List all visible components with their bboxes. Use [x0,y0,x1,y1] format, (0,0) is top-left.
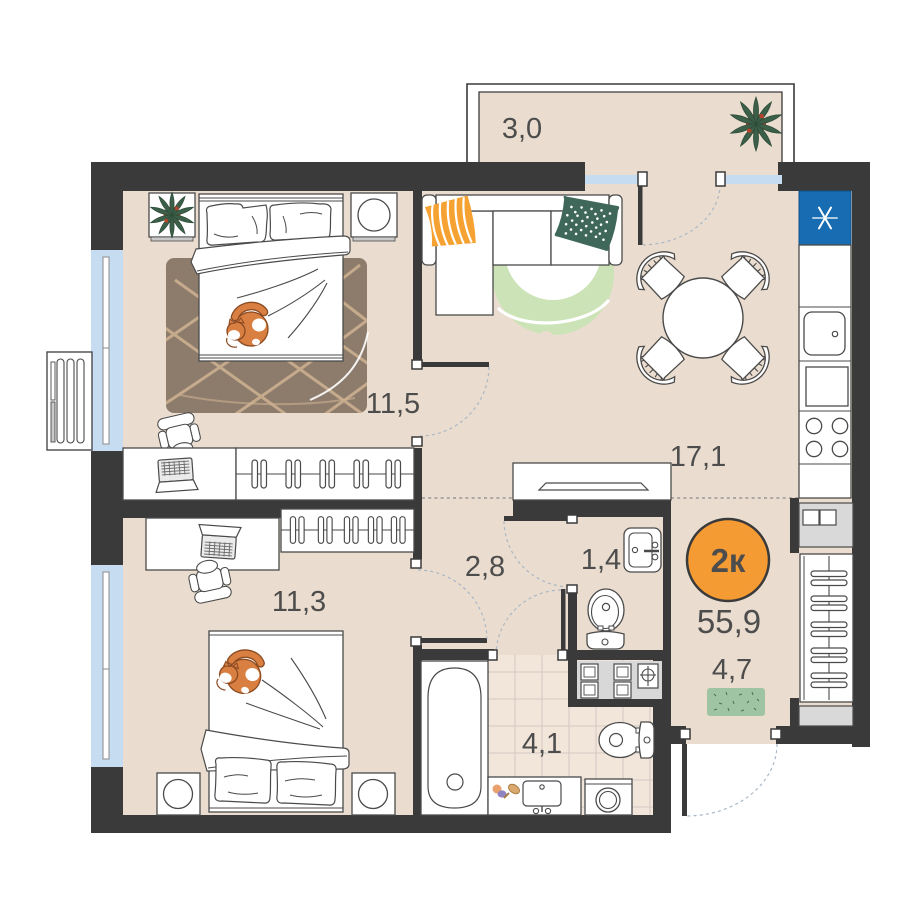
svg-text:4,7: 4,7 [712,654,752,686]
svg-text:11,5: 11,5 [366,388,420,420]
svg-text:3,0: 3,0 [502,113,542,145]
svg-text:1,4: 1,4 [581,544,621,576]
svg-text:2,8: 2,8 [465,551,505,583]
svg-text:11,3: 11,3 [272,586,326,618]
svg-text:55,9: 55,9 [697,603,761,640]
svg-text:4,1: 4,1 [522,728,562,760]
svg-text:17,1: 17,1 [670,441,726,473]
svg-text:2к: 2к [711,542,746,579]
